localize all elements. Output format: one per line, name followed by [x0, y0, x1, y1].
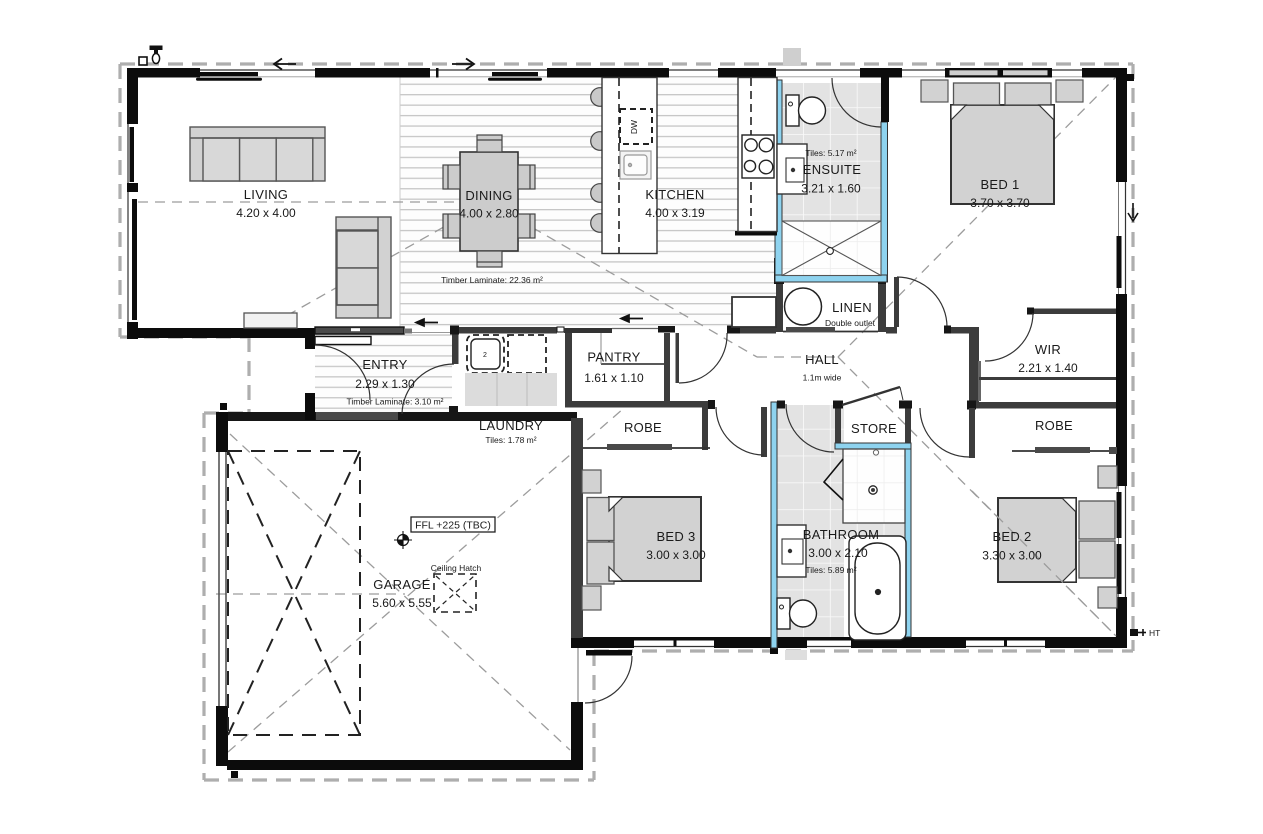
svg-text:PANTRY: PANTRY	[587, 350, 640, 365]
svg-text:3.21 x 1.60: 3.21 x 1.60	[801, 182, 861, 196]
svg-text:LINEN: LINEN	[832, 300, 872, 315]
svg-text:2.21 x 1.40: 2.21 x 1.40	[1018, 361, 1078, 375]
svg-text:LAUNDRY: LAUNDRY	[479, 418, 543, 433]
svg-text:Double outlet: Double outlet	[825, 318, 876, 328]
svg-text:3.00 x 2.10: 3.00 x 2.10	[808, 546, 868, 560]
svg-text:HT: HT	[1149, 628, 1160, 638]
svg-text:Ceiling Hatch: Ceiling Hatch	[431, 563, 482, 573]
svg-text:BED 3: BED 3	[656, 529, 695, 544]
svg-text:DINING: DINING	[465, 188, 512, 203]
svg-text:DW: DW	[629, 120, 639, 134]
svg-text:4.20 x 4.00: 4.20 x 4.00	[236, 206, 296, 220]
svg-text:3.00 x 3.00: 3.00 x 3.00	[646, 548, 706, 562]
svg-text:Tiles: 5.89 m²: Tiles: 5.89 m²	[805, 565, 856, 575]
svg-text:GARAGE: GARAGE	[373, 577, 430, 592]
svg-text:Tiles: 1.78 m²: Tiles: 1.78 m²	[485, 435, 536, 445]
svg-text:BED 2: BED 2	[992, 529, 1031, 544]
svg-text:ENTRY: ENTRY	[362, 357, 407, 372]
svg-text:Tiles: 5.17 m²: Tiles: 5.17 m²	[805, 148, 856, 158]
svg-text:LIVING: LIVING	[244, 187, 288, 202]
svg-text:STORE: STORE	[851, 421, 897, 436]
svg-text:ROBE: ROBE	[1035, 418, 1073, 433]
svg-text:3.70 x 3.70: 3.70 x 3.70	[970, 196, 1030, 210]
svg-text:Timber Laminate: 22.36 m²: Timber Laminate: 22.36 m²	[441, 275, 543, 285]
svg-text:FFL +225 (TBC): FFL +225 (TBC)	[415, 520, 491, 532]
svg-text:Timber Laminate: 3.10 m²: Timber Laminate: 3.10 m²	[347, 397, 444, 407]
svg-text:WIR: WIR	[1035, 342, 1061, 357]
svg-text:BED 1: BED 1	[980, 177, 1019, 192]
svg-text:5.60 x 5.55: 5.60 x 5.55	[372, 596, 432, 610]
svg-text:ROBE: ROBE	[624, 420, 662, 435]
svg-text:4.00 x 3.19: 4.00 x 3.19	[645, 206, 705, 220]
svg-text:KITCHEN: KITCHEN	[645, 187, 704, 202]
svg-text:BATHROOM: BATHROOM	[803, 527, 880, 542]
svg-text:HALL: HALL	[805, 352, 839, 367]
svg-text:2.29 x 1.30: 2.29 x 1.30	[355, 377, 415, 391]
svg-text:2: 2	[483, 352, 487, 359]
svg-text:1.61 x 1.10: 1.61 x 1.10	[584, 371, 644, 385]
svg-text:ENSUITE: ENSUITE	[803, 162, 861, 177]
svg-text:4.00 x 2.80: 4.00 x 2.80	[459, 207, 519, 221]
svg-text:1.1m wide: 1.1m wide	[803, 373, 842, 383]
svg-text:3.30 x 3.00: 3.30 x 3.00	[982, 549, 1042, 563]
